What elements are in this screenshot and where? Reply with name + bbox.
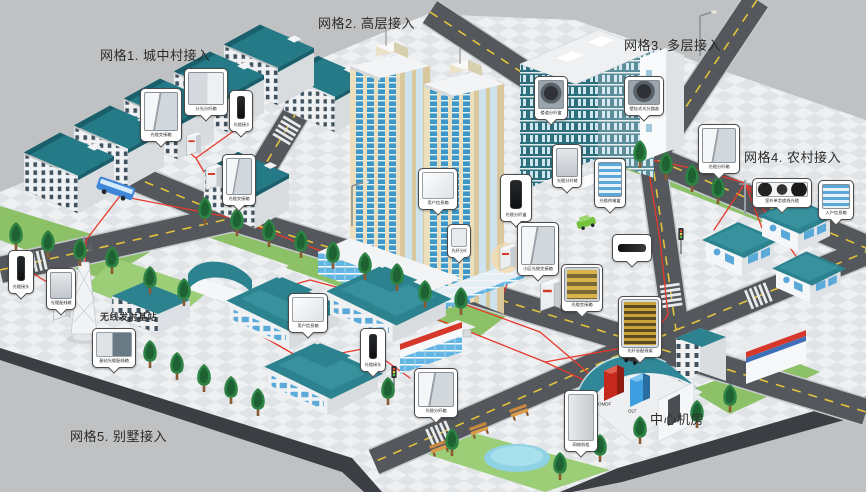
home-info-box-icon	[822, 184, 850, 209]
equipment-label: 小区光缆交接箱	[523, 267, 554, 273]
equipment-label: 用户信息箱	[294, 324, 323, 330]
equipment-label: 光缆接头盒	[365, 363, 382, 369]
equipment-label: 用户信息箱	[424, 201, 453, 207]
cross-cabinet-icon	[521, 226, 555, 265]
fiber-cabinet-icon	[702, 128, 736, 163]
callout-grid1-splitter-box: 分光分纤箱	[184, 68, 228, 116]
grid3-label: 网格3. 多层接入	[624, 35, 721, 54]
equipment-label: 楼道分纤盒	[539, 111, 563, 117]
base-station-label: 无线发射基站	[100, 310, 157, 323]
callout-villa-fiber-cabinet: 光缆分纤箱	[414, 368, 458, 418]
grid1-label: 网格1. 城中村接入	[100, 45, 210, 64]
corridor-box-icon	[538, 80, 564, 109]
equipment-label: 室外单芯皮线光缆	[759, 199, 805, 205]
equipment-label: 光缆交接箱	[567, 303, 598, 309]
omdf-label: OMDF	[598, 402, 611, 407]
callout-grid3-corridor-box: 楼道分纤盒	[534, 76, 568, 120]
olt-label: OLT	[628, 409, 636, 414]
splice-closure-icon	[618, 244, 647, 252]
callout-villa-user-info-box: 用户信息箱	[288, 293, 328, 333]
equipment-label: 光缆分纤箱	[557, 179, 577, 185]
callout-grid2-community-cross-cabinet: 小区光缆交接箱	[517, 222, 559, 276]
cross-cabinet-icon	[144, 92, 178, 131]
callout-grid3-terminal-box: 光缆终端盒	[594, 158, 626, 208]
callout-grid2-distribution-box: 光缆分纤盒	[500, 174, 532, 222]
callout-co-network-rack: 网络机柜	[564, 390, 598, 452]
wall-splitter-icon	[628, 80, 660, 105]
callout-grid3-wall-splitter: 壁挂式光分路器	[624, 76, 664, 116]
user-info-box-icon	[292, 297, 324, 322]
fiber-cabinet-icon	[556, 148, 578, 177]
callout-grid1-splice-closure: 光缆接头盒	[229, 90, 253, 132]
cross-cabinet-icon	[226, 158, 252, 195]
equipment-label: 光缆交接箱	[146, 133, 177, 139]
callout-villa-splice-closure: 光缆接头盒	[360, 328, 386, 372]
grid2-label: 网格2. 高层接入	[318, 13, 415, 32]
equipment-label: 分光分纤箱	[190, 107, 222, 113]
equipment-label: 基站光缆配线箱	[98, 359, 130, 365]
callout-grid1-cross-cabinet: 光缆交接箱	[140, 88, 182, 142]
network-topology-diagram: 网格1. 城中村接入 网格2. 高层接入 网格3. 多层接入 网格4. 农村接入…	[0, 0, 866, 492]
callout-co-splice-closure: 光缆接头盒	[612, 234, 652, 262]
equipment-label: 光纤总配线架	[624, 349, 656, 355]
splice-closure-icon	[17, 256, 26, 281]
drop-cable-icon	[756, 182, 808, 197]
callout-grid4-home-info-box: 入户信息箱	[818, 180, 854, 220]
splice-closure-icon	[369, 334, 378, 359]
callout-grid4-fiber-cabinet: 光缆分纤箱	[698, 124, 740, 174]
equipment-label: 光缆终端盒	[599, 199, 621, 205]
callout-grid2-user-info-box: 用户信息箱	[418, 168, 458, 210]
callout-street-cross-cabinet: 光缆交接箱	[222, 154, 256, 206]
callout-grid3-fiber-cabinet: 光缆分纤箱	[552, 144, 582, 188]
callout-co-cross-cabinet: 光缆交接箱	[561, 264, 603, 312]
equipment-label: 入户信息箱	[823, 211, 849, 217]
terminal-box-icon	[598, 162, 622, 197]
equipment-label: 光缆接头盒	[233, 123, 248, 129]
callout-grid2-fiber-box: 光纤分纤盒	[447, 224, 471, 258]
odf-rack-icon	[622, 300, 658, 347]
equipment-label: 光缆配线箱	[51, 301, 71, 307]
network-rack-icon	[568, 394, 594, 441]
grid5-label: 网格5. 别墅接入	[70, 426, 167, 445]
splice-closure-icon	[237, 96, 245, 119]
equipment-label: 光缆交接箱	[227, 197, 251, 203]
equipment-label: 光缆分纤箱	[420, 409, 452, 415]
odf-cabinet-icon	[96, 332, 132, 357]
central-office-label: 中心机房	[650, 409, 704, 428]
callout-grid4-drop-cable: 室外单芯皮线光缆	[752, 178, 812, 208]
pond-highlight	[491, 446, 543, 466]
distribution-box-icon	[510, 180, 521, 209]
equipment-label: 光纤分纤盒	[451, 249, 466, 255]
callout-left-splice-closure: 光缆接头盒	[8, 250, 34, 294]
callout-co-main-odf: 光纤总配线架	[618, 296, 662, 358]
callout-left-cabinet: 光缆配线箱	[46, 268, 76, 310]
callout-base-station-odf: 基站光缆配线箱	[92, 328, 136, 368]
equipment-label: 壁挂式光分路器	[630, 107, 659, 113]
grid4-label: 网格4. 农村接入	[744, 147, 841, 166]
cabinet-icon	[50, 272, 72, 299]
equipment-label: 光缆分纤盒	[505, 213, 527, 219]
equipment-label: 光缆接头盒	[13, 285, 30, 291]
equipment-label: 网络机柜	[569, 443, 593, 449]
fiber-cabinet-icon	[418, 372, 454, 407]
cross-cabinet-icon	[565, 268, 599, 301]
fiber-box-icon	[451, 228, 467, 247]
equipment-label: 光缆分纤箱	[704, 165, 735, 171]
user-info-box-icon	[422, 172, 454, 199]
splitter-box-icon	[188, 72, 224, 105]
